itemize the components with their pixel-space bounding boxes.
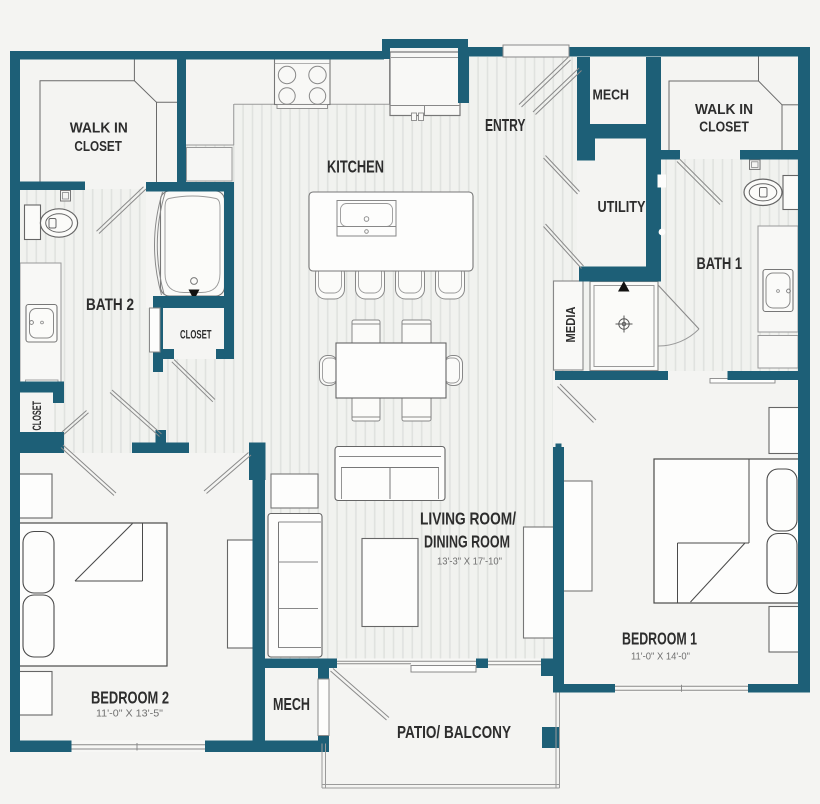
svg-text:CLOSET: CLOSET (699, 119, 749, 135)
svg-text:PATIO/ BALCONY: PATIO/ BALCONY (397, 722, 511, 742)
svg-text:11'-0" X 14'-0": 11'-0" X 14'-0" (631, 651, 690, 663)
svg-text:BATH 1: BATH 1 (697, 255, 743, 273)
svg-text:13'-3" X 17'-10": 13'-3" X 17'-10" (437, 556, 502, 568)
svg-text:UTILITY: UTILITY (598, 199, 647, 216)
svg-text:KITCHEN: KITCHEN (327, 157, 384, 177)
svg-text:MECH: MECH (273, 694, 310, 714)
svg-text:CLOSET: CLOSET (180, 330, 212, 342)
svg-text:CLOSET: CLOSET (32, 401, 44, 431)
svg-text:BEDROOM 1: BEDROOM 1 (622, 629, 697, 649)
svg-text:MEDIA: MEDIA (564, 307, 578, 343)
svg-text:ENTRY: ENTRY (485, 115, 526, 135)
svg-text:WALK IN: WALK IN (70, 120, 128, 136)
svg-text:11'-0" X 13'-5": 11'-0" X 13'-5" (96, 708, 163, 720)
svg-text:BATH 2: BATH 2 (86, 296, 134, 314)
svg-text:CLOSET: CLOSET (74, 139, 122, 155)
svg-text:WALK IN: WALK IN (695, 102, 753, 118)
svg-text:BEDROOM 2: BEDROOM 2 (91, 688, 169, 708)
svg-text:MECH: MECH (593, 87, 630, 104)
svg-text:DINING ROOM: DINING ROOM (424, 532, 510, 552)
svg-text:LIVING ROOM/: LIVING ROOM/ (420, 509, 516, 529)
